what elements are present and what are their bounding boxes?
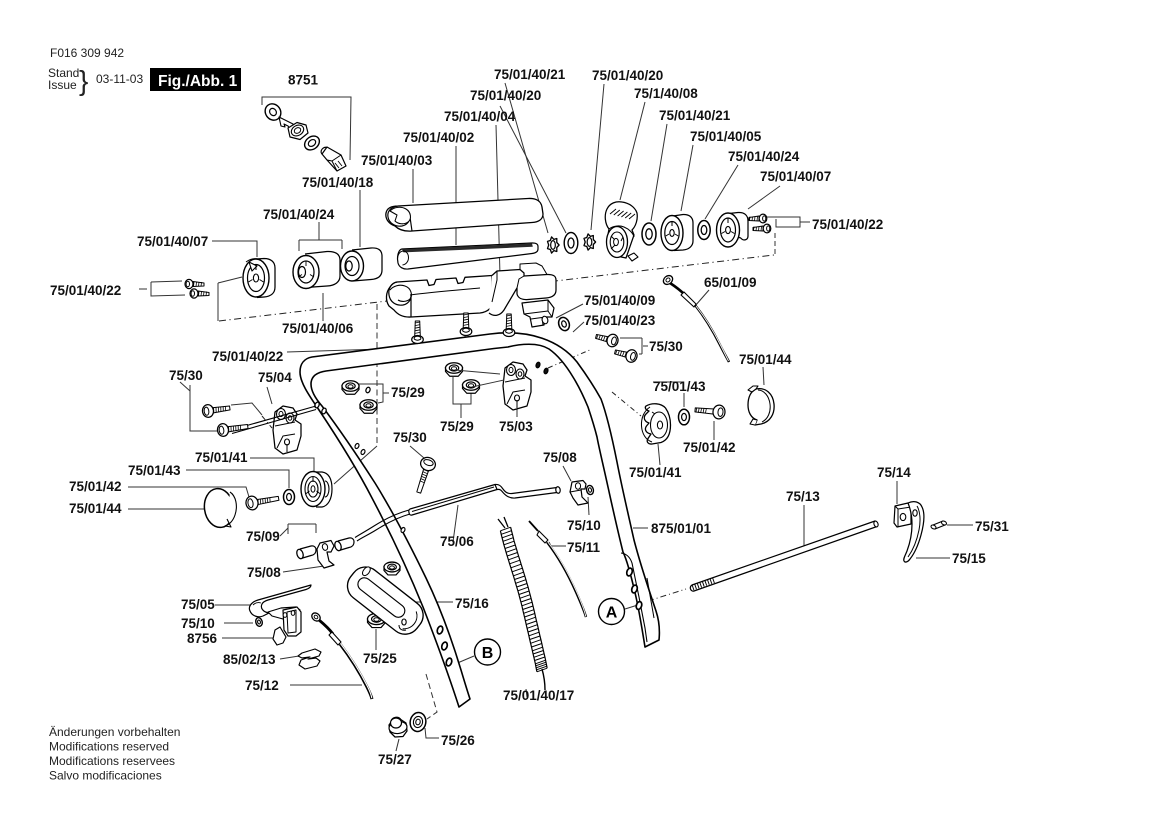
svg-text:75/01/41: 75/01/41 [629,465,682,480]
svg-text:75/01/40/24: 75/01/40/24 [728,149,800,164]
svg-text:75/01/40/21: 75/01/40/21 [494,67,566,82]
svg-text:75/01/41: 75/01/41 [195,450,248,465]
svg-text:75/01/40/18: 75/01/40/18 [302,175,374,190]
svg-text:Issue: Issue [48,78,77,92]
svg-text:8751: 8751 [288,73,319,88]
svg-text:75/06: 75/06 [440,534,474,549]
svg-text:75/01/40/07: 75/01/40/07 [137,234,208,249]
svg-text:Änderungen vorbehalten: Änderungen vorbehalten [49,725,180,739]
svg-text:75/01/42: 75/01/42 [69,479,122,494]
svg-text:75/08: 75/08 [247,565,281,580]
svg-text:75/01/42: 75/01/42 [683,440,736,455]
svg-text:75/01/44: 75/01/44 [69,501,122,516]
svg-text:75/01/40/22: 75/01/40/22 [212,349,283,364]
svg-text:75/01/40/20: 75/01/40/20 [592,68,663,83]
svg-text:B: B [482,645,494,662]
svg-text:75/01/40/02: 75/01/40/02 [403,130,474,145]
svg-text:}: } [79,65,88,96]
svg-text:75/15: 75/15 [952,551,986,566]
svg-text:75/01/40/05: 75/01/40/05 [690,129,762,144]
svg-text:75/12: 75/12 [245,678,279,693]
svg-text:75/01/40/03: 75/01/40/03 [361,153,433,168]
svg-text:75/01/43: 75/01/43 [653,379,706,394]
svg-text:75/01/40/24: 75/01/40/24 [263,207,335,222]
svg-text:75/14: 75/14 [877,465,911,480]
svg-text:Modifications reserved: Modifications reserved [49,740,169,754]
svg-text:75/1/40/08: 75/1/40/08 [634,86,698,101]
svg-text:Salvo modificaciones: Salvo modificaciones [49,769,162,783]
svg-text:75/27: 75/27 [378,752,412,767]
svg-text:75/26: 75/26 [441,733,475,748]
svg-text:75/01/40/23: 75/01/40/23 [584,313,656,328]
svg-text:75/01/40/22: 75/01/40/22 [50,283,121,298]
svg-text:75/29: 75/29 [440,419,474,434]
svg-text:75/01/40/07: 75/01/40/07 [760,169,831,184]
svg-text:75/11: 75/11 [567,540,601,555]
svg-text:75/01/40/04: 75/01/40/04 [444,109,516,124]
svg-text:A: A [606,605,618,622]
svg-text:85/02/13: 85/02/13 [223,652,276,667]
svg-text:75/10: 75/10 [567,518,601,533]
svg-text:75/01/40/20: 75/01/40/20 [470,88,541,103]
svg-text:75/01/40/09: 75/01/40/09 [584,293,655,308]
svg-text:75/01/40/21: 75/01/40/21 [659,108,731,123]
svg-text:75/30: 75/30 [169,368,203,383]
svg-text:65/01/09: 65/01/09 [704,275,757,290]
svg-text:75/09: 75/09 [246,529,280,544]
svg-text:75/29: 75/29 [391,385,425,400]
svg-text:75/25: 75/25 [363,651,397,666]
svg-text:F016 309 942: F016 309 942 [50,46,124,60]
svg-text:8756: 8756 [187,631,218,646]
svg-text:75/30: 75/30 [393,430,427,445]
svg-text:75/03: 75/03 [499,419,533,434]
svg-text:75/01/40/17: 75/01/40/17 [503,688,574,703]
svg-text:75/05: 75/05 [181,597,215,612]
svg-text:75/13: 75/13 [786,489,820,504]
svg-text:03-11-03: 03-11-03 [96,72,143,86]
svg-text:Modifications reservees: Modifications reservees [49,754,175,768]
svg-text:75/08: 75/08 [543,450,577,465]
svg-text:75/31: 75/31 [975,519,1009,534]
svg-text:75/01/43: 75/01/43 [128,463,181,478]
svg-text:75/01/44: 75/01/44 [739,352,792,367]
svg-text:Fig./Abb. 1: Fig./Abb. 1 [158,73,238,90]
svg-text:875/01/01: 875/01/01 [651,521,712,536]
svg-text:75/04: 75/04 [258,370,292,385]
svg-text:75/01/40/22: 75/01/40/22 [812,217,883,232]
svg-text:75/30: 75/30 [649,339,683,354]
svg-text:75/01/40/06: 75/01/40/06 [282,321,354,336]
svg-text:75/10: 75/10 [181,616,215,631]
svg-text:75/16: 75/16 [455,596,489,611]
